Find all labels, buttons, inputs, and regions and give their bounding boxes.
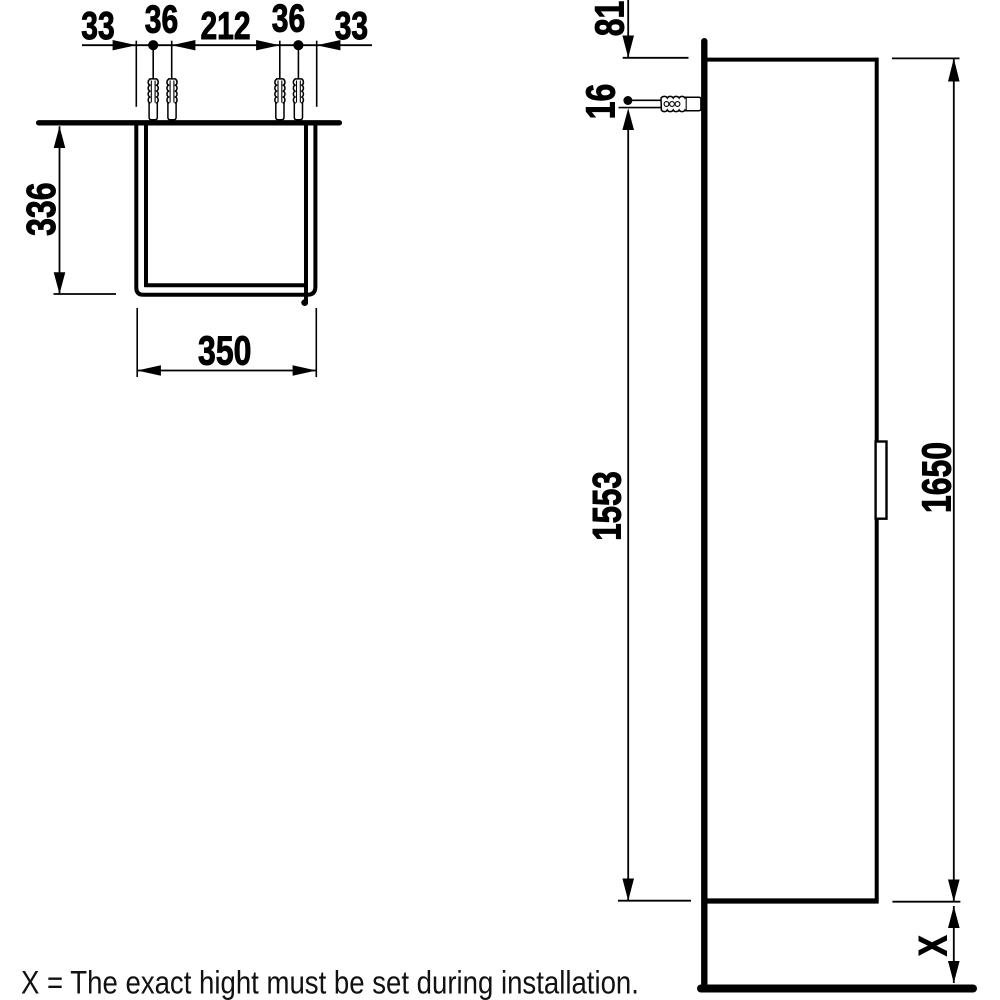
svg-text:X: X bbox=[911, 935, 956, 956]
svg-text:33: 33 bbox=[335, 6, 368, 48]
svg-text:36: 36 bbox=[145, 0, 178, 42]
svg-text:X = The exact hight must be se: X = The exact hight must be set during i… bbox=[21, 966, 639, 1000]
svg-text:1553: 1553 bbox=[585, 471, 630, 540]
svg-text:350: 350 bbox=[198, 328, 251, 374]
svg-text:36: 36 bbox=[272, 0, 305, 41]
svg-text:212: 212 bbox=[200, 6, 250, 48]
svg-text:1650: 1650 bbox=[914, 442, 960, 513]
svg-text:336: 336 bbox=[18, 183, 64, 236]
svg-text:16: 16 bbox=[578, 84, 624, 120]
svg-text:33: 33 bbox=[81, 6, 114, 48]
svg-text:81: 81 bbox=[587, 1, 633, 37]
